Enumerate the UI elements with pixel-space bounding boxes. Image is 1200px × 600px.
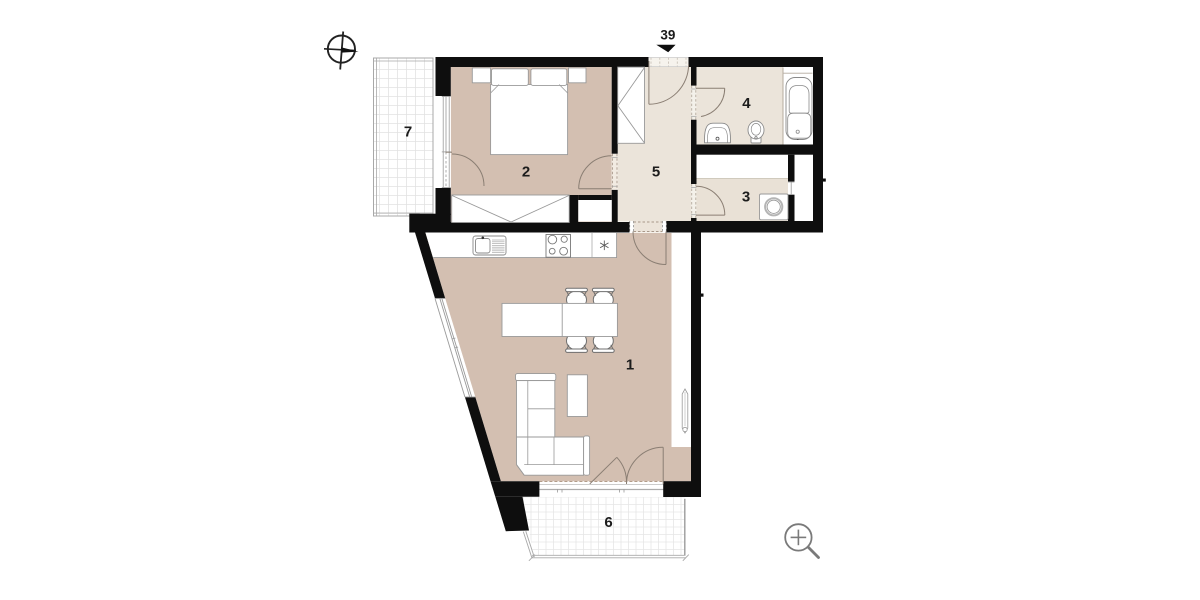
- svg-text:7: 7: [404, 124, 412, 141]
- svg-text:3: 3: [742, 189, 750, 206]
- svg-text:6: 6: [604, 514, 612, 531]
- svg-text:4: 4: [742, 95, 751, 112]
- svg-text:39: 39: [660, 28, 675, 43]
- svg-text:5: 5: [652, 164, 660, 181]
- svg-text:1: 1: [626, 357, 634, 374]
- svg-text:2: 2: [522, 164, 530, 181]
